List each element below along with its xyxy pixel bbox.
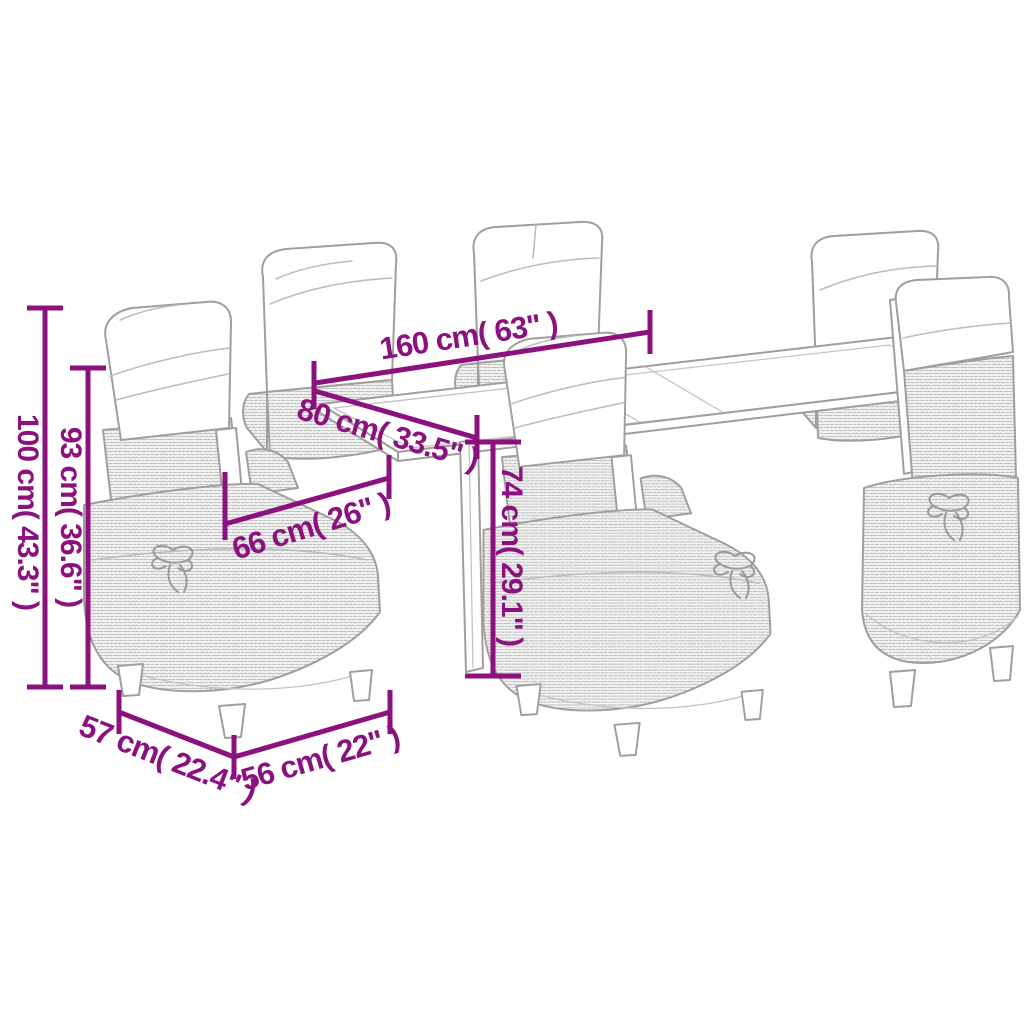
dimension-label-100cm: 100 cm( 43.3" ) xyxy=(11,414,44,610)
dimension-label-93cm: 93 cm( 36.6" ) xyxy=(54,427,87,607)
dimension-chair-width: 56 cm( 22" ) xyxy=(234,690,403,797)
chair-base xyxy=(862,474,1020,663)
furniture-dimension-diagram: 100 cm( 43.3" ) 93 cm( 36.6" ) 74 cm( 29… xyxy=(0,0,1024,1024)
chair-foot xyxy=(890,670,915,707)
chair-foot xyxy=(990,646,1013,681)
dimension-drawing-canvas: 100 cm( 43.3" ) 93 cm( 36.6" ) 74 cm( 29… xyxy=(0,0,1024,1024)
dimension-label-74cm: 74 cm( 29.1" ) xyxy=(495,466,528,646)
